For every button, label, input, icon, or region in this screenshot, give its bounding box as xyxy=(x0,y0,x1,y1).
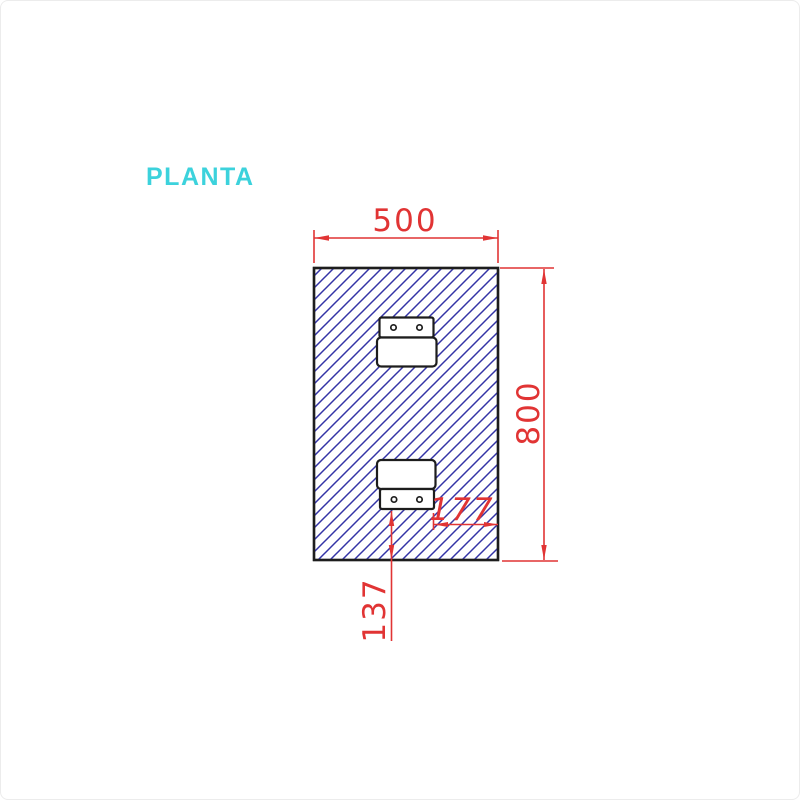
lower-bracket-plate xyxy=(380,489,434,509)
technical-drawing: PLANTA 500 xyxy=(1,1,799,799)
dim-width-arrow-right xyxy=(483,235,498,240)
upper-bracket xyxy=(377,318,437,367)
upper-bracket-hole-left xyxy=(391,325,396,330)
lower-bracket-hole-right xyxy=(417,497,422,502)
dim-width-text: 500 xyxy=(372,203,437,239)
screenshot-frame: PLANTA 500 xyxy=(0,0,800,800)
upper-bracket-hole-right xyxy=(417,325,422,330)
dim-offset-bottom-text: 137 xyxy=(357,577,393,642)
dim-height-arrow-top xyxy=(541,269,546,284)
lower-bracket-hole-left xyxy=(391,497,396,502)
dim-height-text: 800 xyxy=(511,380,547,445)
upper-bracket-body xyxy=(377,338,437,367)
plan-title: PLANTA xyxy=(146,163,255,191)
lower-bracket-body xyxy=(377,460,436,489)
dim-width: 500 xyxy=(314,203,498,263)
dim-plate-offset-right: 177 xyxy=(429,492,498,530)
dim-height: 800 xyxy=(500,268,558,561)
upper-bracket-plate xyxy=(380,318,434,338)
lower-bracket xyxy=(377,460,436,509)
dim-offset-right-text: 177 xyxy=(429,492,494,528)
dim-height-arrow-bottom xyxy=(541,545,546,560)
dim-width-arrow-left xyxy=(314,235,329,240)
